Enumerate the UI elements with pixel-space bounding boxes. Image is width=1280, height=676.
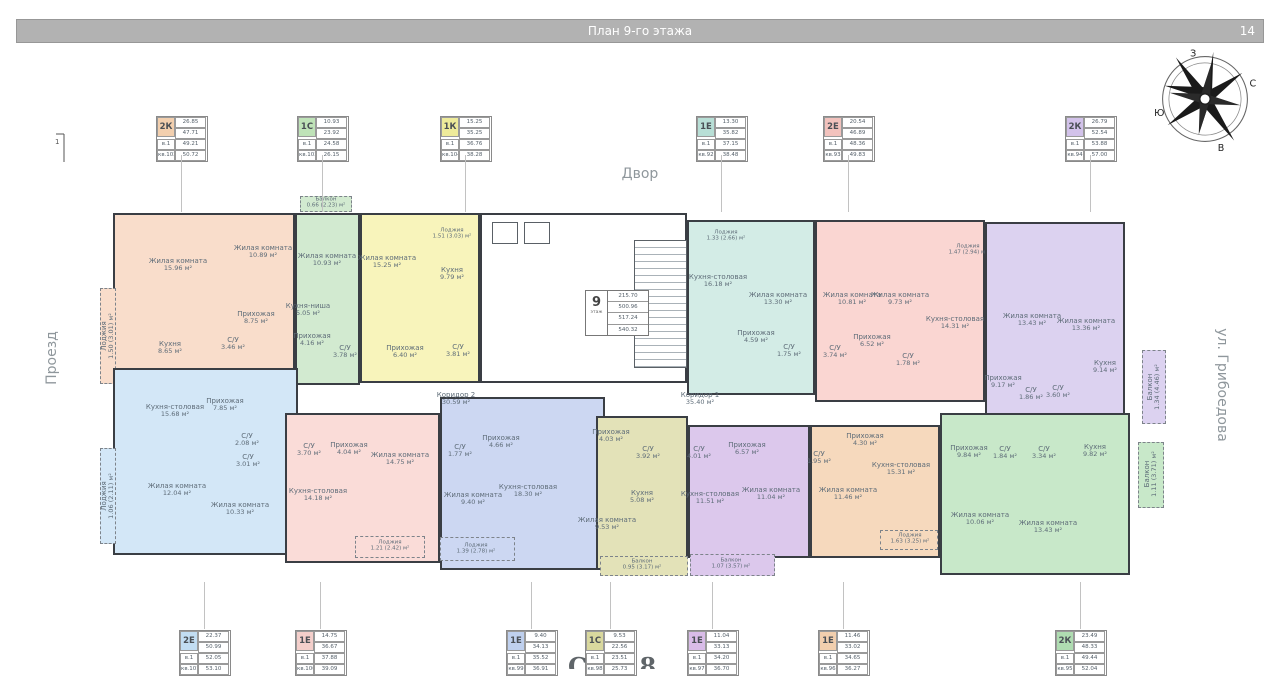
stamp-cell: 33.13	[706, 642, 737, 653]
stamp-cell: в.1	[507, 653, 525, 664]
room-label: Прихожая4.04 м²	[330, 441, 368, 457]
room-label: Балкон1.11 (3.71) м²	[1143, 451, 1159, 497]
floor-summary-value: 540.32	[608, 325, 648, 335]
apartment-type: 1Е	[697, 117, 715, 137]
floor-summary-value: 517.24	[608, 313, 648, 324]
room-label: Балкон0.95 (3.17) м²	[623, 559, 662, 572]
apartment-type: 2К	[1066, 117, 1084, 137]
room-label: Лоджия1.06 (2.11) м²	[100, 473, 116, 519]
stamp-cell: 11.04	[706, 631, 737, 642]
room-area: 30.59 м²	[437, 399, 476, 406]
page-number: 14	[1240, 20, 1255, 42]
stamp-кв-99: 1Е9.4034.13в.135.52кв.9936.91	[506, 630, 558, 676]
room-area: 1.78 м²	[896, 360, 920, 367]
stamp-cell: кв.94	[1066, 150, 1084, 161]
floor-number-label: этаж	[586, 310, 607, 315]
room-label: С/У3.01 м²	[236, 453, 260, 469]
room-label: Жилая комната13.43 м²	[1019, 519, 1077, 535]
cutoff-text-fragment: С 8	[568, 652, 708, 669]
stamp-cell: 50.72	[175, 150, 206, 161]
stamp-cell: 23.49	[1074, 631, 1105, 642]
leader-line	[181, 155, 182, 212]
leader-line	[848, 155, 849, 212]
room-label: С/У3.34 м²	[1032, 445, 1056, 461]
stamp-cell: 22.37	[198, 631, 229, 642]
stamp-cell: 34.65	[837, 653, 868, 664]
floor-summary-values: 215.70500.96517.24540.32	[608, 291, 648, 335]
stamp-cell: 13.30	[715, 117, 746, 128]
room-label: С/У1.77 м²	[448, 443, 472, 459]
stamp-cell: 47.71	[175, 128, 206, 139]
stamp-cell: 52.05	[198, 653, 229, 664]
room-label: Жилая комната9.73 м²	[871, 291, 929, 307]
stamp-кв-100: 1Е14.7536.67в.137.88кв.10039.09	[295, 630, 347, 676]
room-area: 1.84 м²	[993, 453, 1017, 460]
room-label: Кухня-столовая15.68 м²	[146, 403, 204, 419]
room-area: 10.06 м²	[951, 519, 1009, 526]
floor-summary-value: 215.70	[608, 291, 648, 302]
room-area: 11.46 м²	[819, 494, 877, 501]
room-label: Кухня9.79 м²	[440, 266, 464, 282]
room-label: Жилая комната13.30 м²	[749, 291, 807, 307]
room-label: С/У1.75 м²	[777, 343, 801, 359]
room-area: 1.77 м²	[448, 451, 472, 458]
leader-line	[204, 582, 205, 629]
room-area: 9.82 м²	[1083, 451, 1107, 458]
stamp-cell: 36.70	[706, 664, 737, 675]
room-label: Жилая комната10.06 м²	[951, 511, 1009, 527]
room-label: Жилая комната12.04 м²	[148, 482, 206, 498]
room-area: 14.18 м²	[289, 495, 347, 502]
room-area: 3.74 м²	[823, 352, 847, 359]
room-area: 13.43 м²	[1019, 527, 1077, 534]
apartment-type: 1Е	[688, 631, 706, 651]
room-area: 0.66 (2.23) м²	[307, 203, 346, 209]
room-area: 4.30 м²	[846, 440, 884, 447]
room-area: 1.47 (2.94) м²	[949, 250, 988, 256]
room-label: С/У1.78 м²	[896, 352, 920, 368]
room-area: 1.50 (3.01) м²	[108, 313, 115, 359]
compass-rose-icon: З С Ю В	[1152, 46, 1258, 152]
stamp-cell: в.1	[298, 139, 316, 150]
compass-north: С	[1250, 78, 1257, 89]
apartment-type: 1Е	[819, 631, 837, 651]
stamp-cell: 35.82	[715, 128, 746, 139]
leader-line	[1090, 155, 1091, 212]
room-label: Лоджия1.47 (2.94) м²	[949, 244, 988, 257]
room-area: 1.21 (2.42) м²	[371, 546, 410, 552]
room-area: 13.36 м²	[1057, 325, 1115, 332]
room-label: С/У1.95 м²	[807, 450, 831, 466]
room-label: Прихожая4.30 м²	[846, 432, 884, 448]
stamp-cell: 24.58	[316, 139, 347, 150]
room-label: Кухня-столовая14.31 м²	[926, 315, 984, 331]
stamp-cell: 49.21	[175, 139, 206, 150]
section-mark-icon: 1	[52, 130, 70, 166]
room-area: 6.57 м²	[728, 449, 766, 456]
stamp-кв-92: 1Е13.3035.82в.137.15кв.9238.48	[696, 116, 748, 162]
room-label: Балкон0.66 (2.23) м²	[307, 197, 346, 210]
room-area: 4.66 м²	[482, 442, 520, 449]
room-label: С/У3.60 м²	[1046, 384, 1070, 400]
stamp-cell: в.1	[819, 653, 837, 664]
room-label: Жилая комната11.46 м²	[819, 486, 877, 502]
apartment-type: 1К	[441, 117, 459, 137]
room-label: Жилая комната13.36 м²	[1057, 317, 1115, 333]
floor-number: 9	[586, 296, 607, 310]
room-area: 1.75 м²	[777, 351, 801, 358]
room-area: 3.78 м²	[333, 352, 357, 359]
room-label: Кухня5.08 м²	[630, 489, 654, 505]
room-area: 4.59 м²	[737, 337, 775, 344]
room-area: 3.70 м²	[297, 450, 321, 457]
room-area: 16.18 м²	[689, 281, 747, 288]
stamp-cell: 26.85	[175, 117, 206, 128]
stamp-cell: 34.20	[706, 653, 737, 664]
stamp-cell: в.1	[1056, 653, 1074, 664]
stamp-cell: 49.44	[1074, 653, 1105, 664]
room-label: Лоджия1.21 (2.42) м²	[371, 540, 410, 553]
room-area: 11.04 м²	[742, 494, 800, 501]
room-label: Кухня-столовая14.18 м²	[289, 487, 347, 503]
apartment-kv95	[940, 413, 1130, 575]
stamp-cell: 53.10	[198, 664, 229, 675]
room-area: 9.40 м²	[444, 499, 502, 506]
room-area: 9.79 м²	[440, 274, 464, 281]
room-area: 14.75 м²	[371, 459, 429, 466]
stamp-cell: 39.09	[314, 664, 345, 675]
room-label: Прихожая4.03 м²	[592, 428, 630, 444]
room-label: Прихожая4.66 м²	[482, 434, 520, 450]
room-area: 3.46 м²	[221, 344, 245, 351]
room-label: Жилая комната13.43 м²	[1003, 312, 1061, 328]
stamp-кв-103: 1С10.9323.92в.124.58кв.10326.15	[297, 116, 349, 162]
stamp-cell: 36.76	[459, 139, 490, 150]
stamp-cell: кв.102	[157, 150, 175, 161]
stamp-cell: 52.04	[1074, 664, 1105, 675]
room-label: Балкон1.07 (3.57) м²	[712, 558, 751, 571]
room-area: 5.05 м²	[286, 310, 330, 317]
room-area: 18.30 м²	[499, 491, 557, 498]
room-area: 3.60 м²	[1046, 392, 1070, 399]
stamp-cell: 48.33	[1074, 642, 1105, 653]
stamp-cell: 49.83	[842, 150, 873, 161]
room-label: Жилая комната15.96 м²	[149, 257, 207, 273]
page-title: План 9-го этажа	[588, 24, 692, 38]
stamp-cell: 26.79	[1084, 117, 1115, 128]
room-area: 15.68 м²	[146, 411, 204, 418]
room-area: 9.14 м²	[1093, 367, 1117, 374]
stamp-cell: в.1	[180, 653, 198, 664]
stamp-cell: в.1	[697, 139, 715, 150]
leader-line	[531, 582, 532, 629]
room-area: 3.92 м²	[636, 453, 660, 460]
apartment-kv101	[113, 368, 298, 555]
room-area: 8.65 м²	[158, 348, 182, 355]
leader-line	[610, 582, 611, 629]
room-label: Жилая комната10.89 м²	[234, 244, 292, 260]
room-label: Прихожая6.40 м²	[386, 344, 424, 360]
compass-west: З	[1190, 49, 1196, 60]
stamp-cell: 26.15	[316, 150, 347, 161]
stamp-cell: 57.00	[1084, 150, 1115, 161]
room-label: С/У4.01 м²	[687, 445, 711, 461]
room-area: 1.51 (3.03) м²	[433, 234, 472, 240]
room-label: Жилая комната10.33 м²	[211, 501, 269, 517]
room-area: 9.17 м²	[984, 382, 1022, 389]
floor-number-cell: 9 этаж	[586, 291, 608, 335]
room-area: 3.81 м²	[446, 351, 470, 358]
floor-summary-box: 9 этаж 215.70500.96517.24540.32	[585, 290, 649, 336]
leader-line	[322, 155, 323, 212]
room-area: 10.33 м²	[211, 509, 269, 516]
floor-summary-value: 500.96	[608, 302, 648, 313]
room-label: Прихожая7.85 м²	[206, 397, 244, 413]
stamp-cell: 38.48	[715, 150, 746, 161]
stamp-cell: кв.101	[180, 664, 198, 675]
stamp-кв-104: 1К15.2535.25в.136.76кв.10438.28	[440, 116, 492, 162]
room-label: Лоджия1.63 (3.25) м²	[891, 533, 930, 546]
stamp-кв-96: 1Е11.4633.02в.134.65кв.9636.27	[818, 630, 870, 676]
room-label: Прихожая4.59 м²	[737, 329, 775, 345]
apartment-type: 1С	[298, 117, 316, 137]
room-area: 1.34 (4.46) м²	[1154, 364, 1161, 410]
stamp-cell: 9.53	[604, 631, 635, 642]
stamp-cell: в.1	[296, 653, 314, 664]
room-label: Жилая комната9.40 м²	[444, 491, 502, 507]
stamp-cell: кв.99	[507, 664, 525, 675]
compass-south: Ю	[1154, 108, 1164, 119]
apartment-type: 2Е	[180, 631, 198, 651]
room-label: С/У1.86 м²	[1019, 386, 1043, 402]
room-label: Коридор 135.40 м²	[681, 391, 720, 407]
room-label: Кухня8.65 м²	[158, 340, 182, 356]
room-area: 1.86 м²	[1019, 394, 1043, 401]
room-area: 5.08 м²	[630, 497, 654, 504]
room-label: Кухня-столовая16.18 м²	[689, 273, 747, 289]
room-label: Прихожая9.84 м²	[950, 444, 988, 460]
leader-line	[721, 155, 722, 212]
room-label: Жилая комната11.04 м²	[742, 486, 800, 502]
room-label: Кухня9.14 м²	[1093, 359, 1117, 375]
section-mark-number: 1	[55, 138, 59, 146]
room-label: Жилая комната9.53 м²	[578, 516, 636, 532]
stamp-cell: 20.54	[842, 117, 873, 128]
room-label: Лоджия1.50 (3.01) м²	[100, 313, 116, 359]
room-area: 1.63 (3.25) м²	[891, 539, 930, 545]
room-label: Жилая комната15.25 м²	[358, 254, 416, 270]
room-label: Лоджия1.51 (3.03) м²	[433, 228, 472, 241]
leader-line	[712, 582, 713, 629]
room-area: 11.51 м²	[681, 498, 739, 505]
room-label: С/У3.92 м²	[636, 445, 660, 461]
apartment-type: 2К	[157, 117, 175, 137]
stamp-cell: 52.54	[1084, 128, 1115, 139]
label-courtyard: Двор	[622, 166, 659, 182]
stamp-cell: 36.91	[525, 664, 556, 675]
room-area: 13.30 м²	[749, 299, 807, 306]
stamp-cell: 34.13	[525, 642, 556, 653]
stamp-cell: 9.40	[525, 631, 556, 642]
room-label: Кухня9.82 м²	[1083, 443, 1107, 459]
stamp-cell: в.1	[824, 139, 842, 150]
room-label: С/У2.08 м²	[235, 432, 259, 448]
stamp-cell: в.1	[1066, 139, 1084, 150]
compass-east: В	[1218, 143, 1225, 152]
stamp-cell: в.1	[157, 139, 175, 150]
room-label: С/У3.81 м²	[446, 343, 470, 359]
stamp-cell: кв.93	[824, 150, 842, 161]
room-label: Кухня-столовая18.30 м²	[499, 483, 557, 499]
stamp-cell: 14.75	[314, 631, 345, 642]
elevator-shaft	[524, 222, 550, 244]
room-area: 1.95 м²	[807, 458, 831, 465]
room-label: Кухня-столовая11.51 м²	[681, 490, 739, 506]
room-area: 1.11 (3.71) м²	[1151, 451, 1158, 497]
room-area: 9.73 м²	[871, 299, 929, 306]
room-label: Коридор 230.59 м²	[437, 391, 476, 407]
room-area: 13.43 м²	[1003, 320, 1061, 327]
apartment-type: 1С	[586, 631, 604, 651]
room-area: 4.16 м²	[293, 340, 331, 347]
room-label: Прихожая4.16 м²	[293, 332, 331, 348]
room-label: С/У1.84 м²	[993, 445, 1017, 461]
room-label: Прихожая8.75 м²	[237, 310, 275, 326]
stamp-кв-102: 2К26.8547.71в.149.21кв.10250.72	[156, 116, 208, 162]
room-label: С/У3.70 м²	[297, 442, 321, 458]
stamp-cell: 53.88	[1084, 139, 1115, 150]
room-area: 4.01 м²	[687, 453, 711, 460]
room-area: 1.07 (3.57) м²	[712, 564, 751, 570]
room-area: 10.93 м²	[298, 260, 356, 267]
room-label: С/У3.46 м²	[221, 336, 245, 352]
room-area: 4.04 м²	[330, 449, 368, 456]
room-area: 6.52 м²	[853, 341, 891, 348]
stamp-cell: кв.96	[819, 664, 837, 675]
stamp-cell: 35.52	[525, 653, 556, 664]
stamp-cell: 50.99	[198, 642, 229, 653]
stamp-cell: 35.25	[459, 128, 490, 139]
stamp-cell: 48.36	[842, 139, 873, 150]
stamp-cell: 10.93	[316, 117, 347, 128]
room-area: 1.39 (2.78) м²	[457, 549, 496, 555]
stamp-cell: кв.95	[1056, 664, 1074, 675]
room-label: С/У3.78 м²	[333, 344, 357, 360]
label-street-griboedova: ул. Грибоедова	[1214, 328, 1230, 442]
apartment-type: 1Е	[296, 631, 314, 651]
room-area: 6.40 м²	[386, 352, 424, 359]
room-area: 8.75 м²	[237, 318, 275, 325]
stamp-cell: кв.103	[298, 150, 316, 161]
room-area: 1.06 (2.11) м²	[108, 473, 115, 519]
leader-line	[843, 582, 844, 629]
room-area: 35.40 м²	[681, 399, 720, 406]
leader-line	[465, 155, 466, 212]
room-label: Лоджия1.33 (2.66) м²	[707, 230, 746, 243]
stamp-cell: 46.89	[842, 128, 873, 139]
stamp-кв-95: 2К23.4948.33в.149.44кв.9552.04	[1055, 630, 1107, 676]
room-label: Лоджия1.39 (2.78) м²	[457, 543, 496, 556]
room-area: 12.04 м²	[148, 490, 206, 497]
room-area: 0.95 (3.17) м²	[623, 565, 662, 571]
stamp-кв-101: 2Е22.3750.99в.152.05кв.10153.10	[179, 630, 231, 676]
room-area: 1.33 (2.66) м²	[707, 236, 746, 242]
label-driveway: Проезд	[44, 331, 60, 385]
stamp-cell: 37.88	[314, 653, 345, 664]
room-area: 9.53 м²	[578, 524, 636, 531]
room-area: 7.85 м²	[206, 405, 244, 412]
room-area: 15.96 м²	[149, 265, 207, 272]
stamp-cell: 36.67	[314, 642, 345, 653]
apartment-kv92	[687, 220, 815, 395]
leader-line	[1080, 582, 1081, 629]
stamp-cell: 38.28	[459, 150, 490, 161]
room-area: 3.34 м²	[1032, 453, 1056, 460]
room-label: С/У3.74 м²	[823, 344, 847, 360]
apartment-type: 1Е	[507, 631, 525, 651]
stamp-cell: 36.27	[837, 664, 868, 675]
room-area: 15.25 м²	[358, 262, 416, 269]
room-area: 9.84 м²	[950, 452, 988, 459]
room-label: Балкон1.34 (4.46) м²	[1146, 364, 1162, 410]
apartment-type: 2К	[1056, 631, 1074, 651]
stamp-cell: 23.92	[316, 128, 347, 139]
room-area: 4.03 м²	[592, 436, 630, 443]
stamp-кв-94: 2К26.7952.54в.153.88кв.9457.00	[1065, 116, 1117, 162]
room-area: 2.08 м²	[235, 440, 259, 447]
room-label: Кухня-ниша5.05 м²	[286, 302, 330, 318]
room-label: Жилая комната14.75 м²	[371, 451, 429, 467]
room-label: Прихожая6.57 м²	[728, 441, 766, 457]
stamp-cell: в.1	[441, 139, 459, 150]
room-label: Жилая комната10.93 м²	[298, 252, 356, 268]
stamp-cell: кв.100	[296, 664, 314, 675]
elevator-shaft	[492, 222, 518, 244]
room-label: Прихожая9.17 м²	[984, 374, 1022, 390]
stamp-cell: 11.46	[837, 631, 868, 642]
leader-line	[320, 582, 321, 629]
room-label: Прихожая6.52 м²	[853, 333, 891, 349]
room-label: Кухня-столовая15.31 м²	[872, 461, 930, 477]
room-area: 15.31 м²	[872, 469, 930, 476]
stamp-cell: 15.25	[459, 117, 490, 128]
apartment-type: 2Е	[824, 117, 842, 137]
room-area: 14.31 м²	[926, 323, 984, 330]
stamp-cell: 37.15	[715, 139, 746, 150]
room-area: 10.89 м²	[234, 252, 292, 259]
room-area: 3.01 м²	[236, 461, 260, 468]
stamp-cell: кв.92	[697, 150, 715, 161]
stamp-cell: 33.02	[837, 642, 868, 653]
stamp-cell: кв.104	[441, 150, 459, 161]
stamp-кв-93: 2Е20.5446.89в.148.36кв.9349.83	[823, 116, 875, 162]
header-bar: План 9-го этажа 14	[16, 19, 1264, 43]
